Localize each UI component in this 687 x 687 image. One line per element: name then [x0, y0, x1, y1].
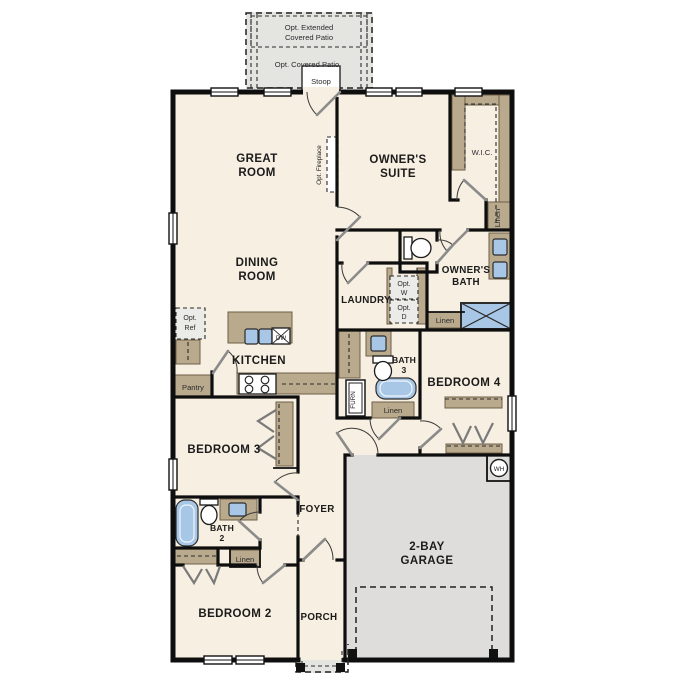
label-linen: Linen [493, 209, 502, 228]
door-gaps [303, 87, 339, 97]
label-great-room2: ROOM [238, 167, 275, 179]
label-owners-bath2: BATH [452, 277, 480, 288]
label-dining: DINING [236, 257, 279, 269]
toilet-icon [373, 356, 393, 381]
label-great-room: GREAT [236, 153, 277, 165]
label-owners-suite: OWNER'S [369, 154, 426, 166]
window-icon [169, 213, 177, 244]
label-stoop: Stoop [311, 77, 331, 86]
label-bedroom4: BEDROOM 4 [427, 377, 500, 389]
label-bath3: BATH [392, 355, 416, 365]
label-bath2-2: 2 [220, 533, 225, 543]
label-opt-extended-patio: Opt. Extended [285, 23, 334, 32]
label-opt-covered-patio: Opt. Covered Patio [275, 60, 340, 69]
label-laundry: LAUNDRY [341, 295, 391, 306]
window-icon [508, 396, 516, 431]
floor-plan-page: Opt. Extended Covered Patio Opt. Covered… [0, 0, 687, 687]
bedroom2-closet-shelf [175, 549, 218, 564]
window-icon [264, 88, 291, 96]
label-bath2: BATH [210, 523, 234, 533]
bathtub-icon [176, 500, 198, 546]
sink-icon [493, 239, 507, 255]
label-owners-bath: OWNER'S [442, 265, 491, 276]
label-bedroom2: BEDROOM 2 [198, 608, 271, 620]
toilet-icon [404, 237, 431, 259]
label-bath3-2: 3 [402, 365, 407, 375]
label-opt-w: Opt. [397, 281, 410, 288]
wic-shelf [452, 95, 465, 170]
toilet-icon [200, 499, 218, 525]
label-porch: PORCH [301, 612, 338, 623]
label-pantry: Pantry [182, 383, 204, 392]
porch-post [336, 663, 345, 672]
kitchen-sink-icon [245, 329, 258, 344]
range-icon [239, 374, 276, 394]
window-icon [204, 656, 232, 664]
sink-icon [229, 503, 246, 516]
label-opt-ref: Opt. [183, 315, 196, 322]
label-opt-fireplace: Opt. Fireplace [316, 145, 323, 185]
sink-icon [493, 262, 507, 278]
label-dw: DW [276, 335, 287, 342]
label-dining2: ROOM [238, 271, 275, 283]
label-owners-suite2: SUITE [380, 168, 416, 180]
label-linen: Linen [436, 316, 455, 325]
porch-post [296, 663, 305, 672]
label-kitchen: KITCHEN [232, 355, 286, 367]
label-furn: FURN [350, 391, 357, 409]
opt-refrigerator-box [176, 308, 205, 339]
window-icon [236, 656, 264, 664]
label-opt-extended-patio2: Covered Patio [285, 33, 333, 42]
label-linen: Linen [236, 555, 255, 564]
label-opt-ref2: Ref [185, 325, 196, 332]
window-icon [169, 459, 177, 490]
window-icon [211, 88, 238, 96]
label-opt-d: Opt. [397, 305, 410, 312]
label-bedroom3: BEDROOM 3 [187, 444, 260, 456]
window-icon [455, 88, 482, 96]
label-garage2: GARAGE [401, 555, 454, 567]
label-wic: W.I.C. [472, 148, 493, 157]
window-icon [396, 88, 422, 96]
label-opt-w2: W [401, 290, 408, 297]
label-linen: Linen [384, 406, 403, 415]
sink-icon [371, 336, 386, 351]
floor-plan-canvas: Opt. Extended Covered Patio Opt. Covered… [0, 0, 687, 687]
kitchen-sink-icon [259, 329, 272, 344]
label-wh: WH [494, 466, 505, 473]
label-garage: 2-BAY [409, 541, 444, 553]
bedroom4-closet-shelf [446, 444, 502, 453]
window-icon [366, 88, 392, 96]
label-opt-d2: D [401, 314, 406, 321]
label-foyer: FOYER [299, 504, 334, 515]
